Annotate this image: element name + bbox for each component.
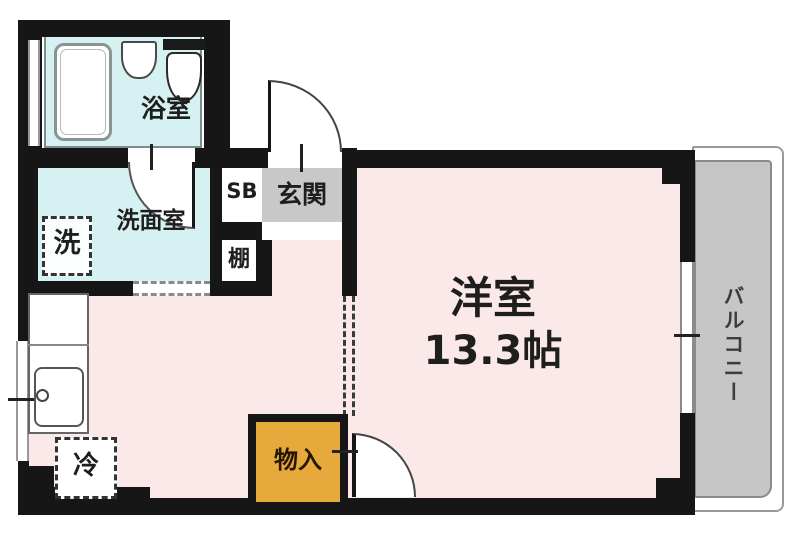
wall-bottom bbox=[18, 498, 695, 515]
refrigerator-label: 冷 bbox=[55, 452, 117, 481]
kitchen-window-tick bbox=[8, 398, 36, 401]
entrance-door-swing bbox=[268, 80, 342, 152]
entrance-step bbox=[262, 222, 342, 240]
wall-shelf-bottom bbox=[210, 281, 272, 296]
bathroom-door-tick bbox=[150, 144, 153, 170]
main-room-label: 洋室 13.3帖 bbox=[378, 276, 608, 373]
wall-step-bottom-right bbox=[656, 478, 695, 508]
washroom-label: 洗面室 bbox=[96, 209, 206, 234]
bathroom-window bbox=[28, 40, 40, 146]
entrance-label: 玄関 bbox=[262, 181, 342, 209]
wall-top-left-right bbox=[204, 20, 230, 168]
entrance-door-tick bbox=[300, 144, 303, 172]
room-divider-dashed-line-2 bbox=[352, 296, 355, 416]
entrance-door-opening bbox=[268, 150, 342, 168]
wall-sb-bottom bbox=[210, 222, 262, 240]
wall-entrance-right bbox=[342, 148, 357, 296]
washroom-dashed-opening bbox=[133, 281, 210, 296]
toilet-tank-icon bbox=[163, 39, 205, 50]
kitchen-faucet-icon bbox=[36, 389, 49, 402]
shoe-box-label: SB bbox=[220, 180, 264, 203]
room-divider-dashed-line-1 bbox=[343, 296, 346, 416]
storage-label: 物入 bbox=[256, 447, 340, 473]
wall-left-mid bbox=[18, 168, 38, 296]
balcony-window bbox=[680, 262, 694, 413]
wall-top-left-top bbox=[18, 20, 230, 37]
floor-plan: 浴室 洗面室 洗 SB 玄関 棚 冷 物入 洋室 13.3帖 バルコニー bbox=[0, 0, 800, 555]
washbasin-icon bbox=[121, 41, 157, 79]
balcony-label: バルコニー bbox=[700, 250, 744, 440]
kitchen-counter-divider bbox=[28, 344, 89, 346]
wall-top-a bbox=[18, 148, 128, 168]
wall-top-b bbox=[195, 148, 268, 168]
bathtub-inner-line bbox=[60, 49, 106, 135]
wall-right-upper bbox=[680, 168, 695, 262]
bathroom-label: 浴室 bbox=[126, 95, 206, 123]
wall-top-c bbox=[342, 150, 695, 168]
shelf-label: 棚 bbox=[222, 248, 256, 272]
washing-machine-label: 洗 bbox=[42, 229, 92, 259]
main-room-size: 13.3帖 bbox=[378, 329, 608, 373]
main-room-name: 洋室 bbox=[378, 276, 608, 323]
balcony-window-tick bbox=[674, 334, 700, 337]
